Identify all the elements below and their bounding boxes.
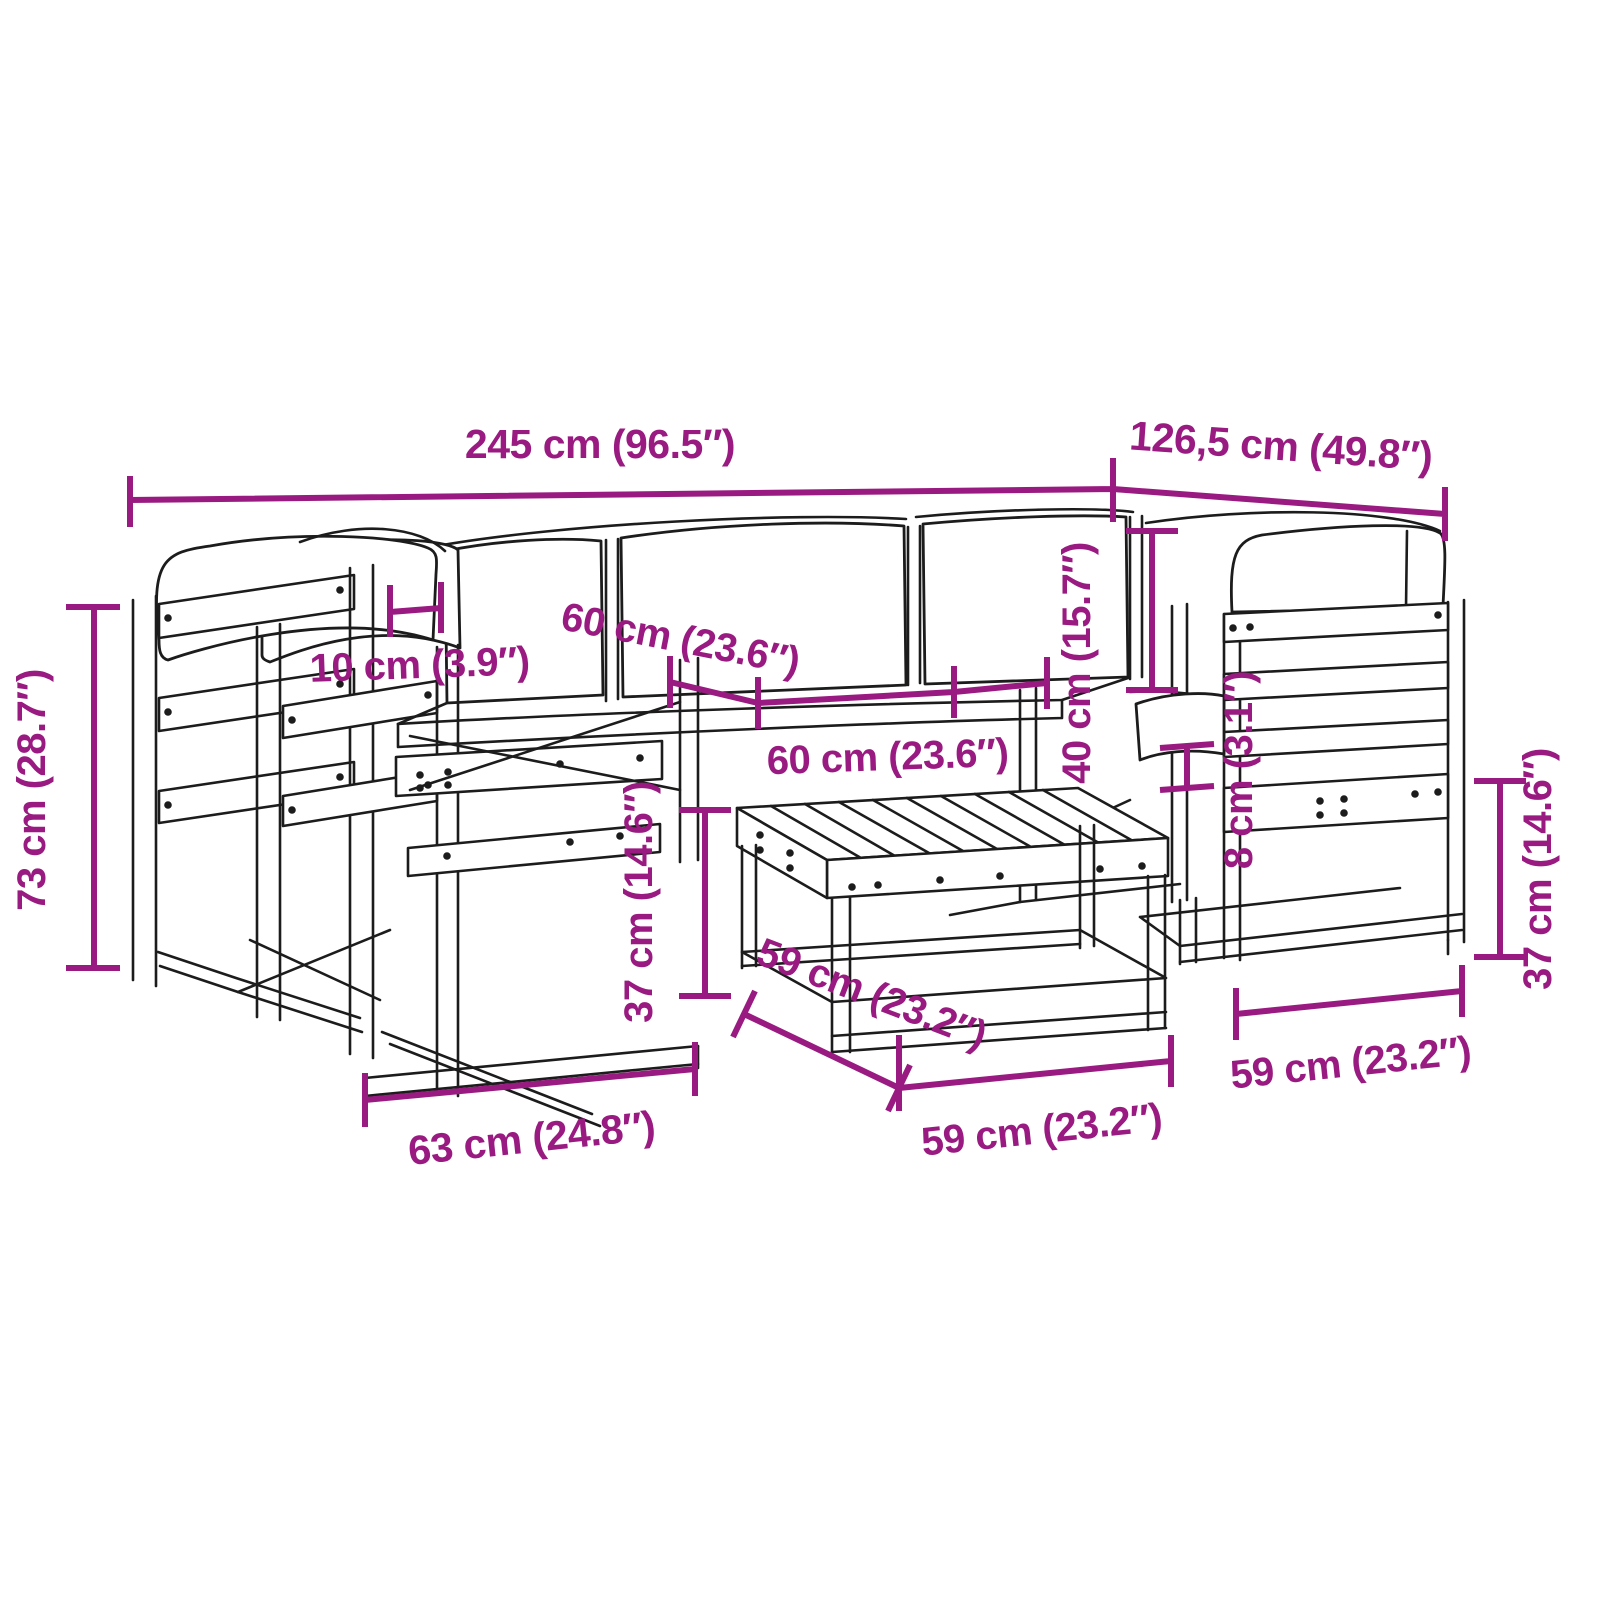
dim-line-total-width: 245 cm (96.5″) xyxy=(130,421,1113,527)
dim-label-seat-width-b: 60 cm (23.6″) xyxy=(766,731,1009,783)
dim-label-total-width: 245 cm (96.5″) xyxy=(465,421,735,467)
dim-label-seat-height: 37 cm (14.6″) xyxy=(1516,748,1560,990)
dim-line-back-height: 73 cm (28.7″) xyxy=(10,607,120,968)
dim-label-back-height: 73 cm (28.7″) xyxy=(10,669,54,911)
diagram-page: 245 cm (96.5″) 126,5 cm (49.8″) 73 cm (2… xyxy=(0,0,1600,1600)
product-dimension-diagram: 245 cm (96.5″) 126,5 cm (49.8″) 73 cm (2… xyxy=(0,0,1600,1600)
furniture-line-art xyxy=(133,509,1464,1126)
dim-label-total-depth: 126,5 cm (49.8″) xyxy=(1128,413,1434,480)
dim-label-table-height: 37 cm (14.6″) xyxy=(617,781,661,1023)
dim-label-table-width: 59 cm (23.2″) xyxy=(919,1096,1164,1165)
dim-label-backrest-height: 40 cm (15.7″) xyxy=(1055,542,1099,784)
dim-label-chair-width: 59 cm (23.2″) xyxy=(1228,1029,1473,1098)
dim-label-seat-depth: 63 cm (24.8″) xyxy=(406,1102,657,1174)
dim-line-seat-height: 37 cm (14.6″) xyxy=(1474,748,1560,990)
dim-label-armrest-offset: 8 cm (3.1″) xyxy=(1217,671,1261,869)
dim-line-table-width: 59 cm (23.2″) xyxy=(899,1035,1171,1165)
dim-line-chair-width: 59 cm (23.2″) xyxy=(1228,965,1473,1098)
dim-line-table-height: 37 cm (14.6″) xyxy=(617,781,731,1023)
dim-label-cushion-gap: 10 cm (3.9″) xyxy=(309,639,530,691)
